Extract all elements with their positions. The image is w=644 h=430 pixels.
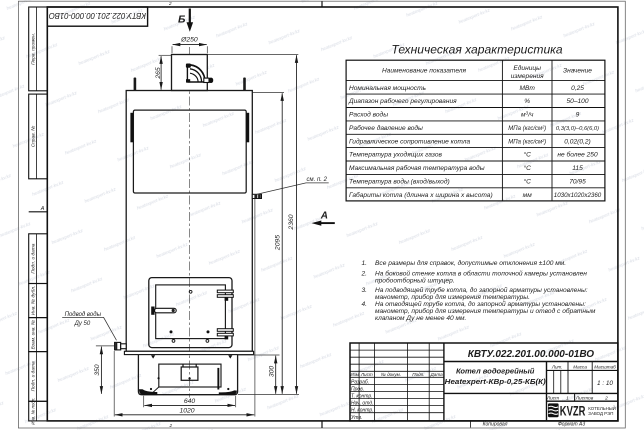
svg-text:Формат А3: Формат А3 xyxy=(558,422,586,428)
svg-text:Котел водогрейный: Котел водогрейный xyxy=(456,367,535,376)
svg-text:Подп. и дата: Подп. и дата xyxy=(31,243,37,273)
svg-text:2360: 2360 xyxy=(288,214,295,230)
svg-text:м3/ч: м3/ч xyxy=(521,111,534,119)
svg-text:0,02(0,2): 0,02(0,2) xyxy=(564,138,590,145)
svg-text:°С: °С xyxy=(523,151,531,159)
svg-text:клапаном Ду не менее 40 мм.: клапаном Ду не менее 40 мм. xyxy=(375,315,467,322)
svg-text:ЗАВОД РЭП: ЗАВОД РЭП xyxy=(588,411,613,416)
svg-text:%: % xyxy=(524,98,530,105)
svg-text:МВт: МВт xyxy=(520,85,536,92)
svg-text:Пров.: Пров. xyxy=(351,386,364,392)
svg-text:0,3(3,0)–0,6(6,0): 0,3(3,0)–0,6(6,0) xyxy=(556,126,599,132)
svg-text:Все размеры для справок, допус: Все размеры для справок, допустимые откл… xyxy=(375,259,566,267)
svg-text:КВТУ.022.201.00.000-01ВО: КВТУ.022.201.00.000-01ВО xyxy=(468,349,595,360)
svg-text:Ду 50: Ду 50 xyxy=(74,321,91,327)
svg-text:измерения: измерения xyxy=(511,73,544,80)
svg-text:МПа (кгс/см²): МПа (кгс/см²) xyxy=(508,126,546,132)
svg-text:°С: °С xyxy=(523,164,531,172)
svg-text:Heatexpert-КВр-0,25-КБ(К): Heatexpert-КВр-0,25-КБ(К) xyxy=(445,377,546,386)
svg-text:На отводящей трубе котла, до з: На отводящей трубе котла, до запорной ар… xyxy=(375,300,586,308)
svg-text:Ø250: Ø250 xyxy=(180,37,198,44)
svg-text:не более 250: не более 250 xyxy=(557,151,598,159)
svg-text:4.: 4. xyxy=(362,301,368,308)
svg-text:На подводящей трубе котла, до: На подводящей трубе котла, до запорной а… xyxy=(375,286,588,294)
svg-text:Габариты котла (длинна х ширин: Габариты котла (длинна х ширина х высота… xyxy=(349,191,493,199)
svg-text:°С: °С xyxy=(523,178,531,186)
svg-text:2: 2 xyxy=(604,396,608,402)
svg-text:Утв.: Утв. xyxy=(351,415,362,421)
svg-text:Инв. № дубл.: Инв. № дубл. xyxy=(31,286,37,316)
svg-text:1: 1 xyxy=(566,396,569,402)
svg-text:Лист: Лист xyxy=(360,372,373,377)
svg-text:Масштаб: Масштаб xyxy=(594,364,616,369)
svg-text:1020: 1020 xyxy=(179,408,194,415)
svg-text:Подп. и дата: Подп. и дата xyxy=(31,361,37,391)
svg-text:Разраб.: Разраб. xyxy=(351,379,369,385)
svg-text:Гидравлическое сопротивление к: Гидравлическое сопротивление котла xyxy=(349,137,470,145)
svg-text:Лит.: Лит. xyxy=(551,364,563,369)
svg-text:1.: 1. xyxy=(362,260,368,267)
svg-text:KVZR: KVZR xyxy=(560,404,586,419)
svg-text:Дата: Дата xyxy=(430,372,444,377)
svg-text:Температура уходящих газов: Температура уходящих газов xyxy=(349,151,442,159)
svg-text:МПа (кгс/см²): МПа (кгс/см²) xyxy=(508,139,546,145)
svg-text:см. п. 2: см. п. 2 xyxy=(307,177,328,183)
svg-text:Подп.: Подп. xyxy=(412,372,424,377)
svg-text:Диапазон рабочего регулировани: Диапазон рабочего регулирования xyxy=(348,97,457,105)
svg-text:Изм: Изм xyxy=(350,372,359,377)
svg-text:Б: Б xyxy=(178,14,186,26)
svg-text:2.: 2. xyxy=(361,270,368,277)
svg-text:№ докум.: № докум. xyxy=(381,372,401,377)
svg-text:Расход воды: Расход воды xyxy=(349,111,388,119)
svg-text:Лист: Лист xyxy=(546,396,559,402)
svg-text:А: А xyxy=(320,210,328,221)
svg-text:Масса: Масса xyxy=(573,364,587,369)
svg-text:Рабочее давление воды: Рабочее давление воды xyxy=(349,124,423,132)
svg-text:2095: 2095 xyxy=(275,235,282,251)
svg-text:9: 9 xyxy=(576,112,580,119)
svg-text:Нач. отд.: Нач. отд. xyxy=(351,401,373,407)
svg-text:манометр, прибор для измерения: манометр, прибор для измерения температу… xyxy=(375,307,596,315)
svg-text:Н. контр.: Н. контр. xyxy=(351,408,374,414)
svg-text:Подвод воды: Подвод воды xyxy=(65,312,102,318)
svg-text:0,25: 0,25 xyxy=(571,85,584,92)
svg-text:На боковой стенке котла в обла: На боковой стенке котла в области топочн… xyxy=(375,269,587,277)
svg-text:Температура воды (вход/выход): Температура воды (вход/выход) xyxy=(349,178,450,186)
svg-text:Листов: Листов xyxy=(575,396,594,402)
svg-text:Взам. инв. №: Взам. инв. № xyxy=(31,320,37,350)
svg-text:пробоотборный штуцер.: пробоотборный штуцер. xyxy=(375,277,455,285)
svg-text:Значение: Значение xyxy=(563,68,592,75)
svg-text:Перв. примен.: Перв. примен. xyxy=(31,33,37,65)
svg-text:Копировал: Копировал xyxy=(483,422,508,428)
svg-text:КОТЕЛЬНЫЙ: КОТЕЛЬНЫЙ xyxy=(588,406,616,411)
svg-text:3.: 3. xyxy=(362,287,368,294)
svg-text:300: 300 xyxy=(268,366,275,378)
svg-text:115: 115 xyxy=(572,165,583,172)
svg-text:Техническая характеристика: Техническая характеристика xyxy=(391,43,563,57)
svg-text:Максимальная рабочая температу: Максимальная рабочая температура воды xyxy=(349,164,485,172)
svg-text:Справ. №: Справ. № xyxy=(31,125,37,147)
svg-text:Наименование показателя: Наименование показателя xyxy=(382,68,467,75)
svg-text:Т. контр.: Т. контр. xyxy=(351,394,373,400)
svg-text:70/95: 70/95 xyxy=(569,179,586,186)
svg-text:640: 640 xyxy=(184,398,196,405)
svg-text:КВТУ.022.201.00.000-01ВО: КВТУ.022.201.00.000-01ВО xyxy=(49,11,146,20)
svg-text:265: 265 xyxy=(155,67,162,80)
svg-text:50–100: 50–100 xyxy=(566,98,588,105)
svg-text:мм: мм xyxy=(523,192,533,199)
svg-text:1030х1020х2360: 1030х1020х2360 xyxy=(554,192,602,199)
svg-text:2: 2 xyxy=(168,1,172,6)
svg-text:Инв. № подл.: Инв. № подл. xyxy=(31,397,36,424)
svg-text:А: А xyxy=(40,206,45,212)
svg-text:350: 350 xyxy=(94,364,101,376)
svg-text:Единицы: Единицы xyxy=(513,64,541,72)
svg-text:Номинальная мощность: Номинальная мощность xyxy=(349,85,427,92)
svg-text:2: 2 xyxy=(169,423,173,428)
svg-text:1 : 10: 1 : 10 xyxy=(597,380,613,387)
